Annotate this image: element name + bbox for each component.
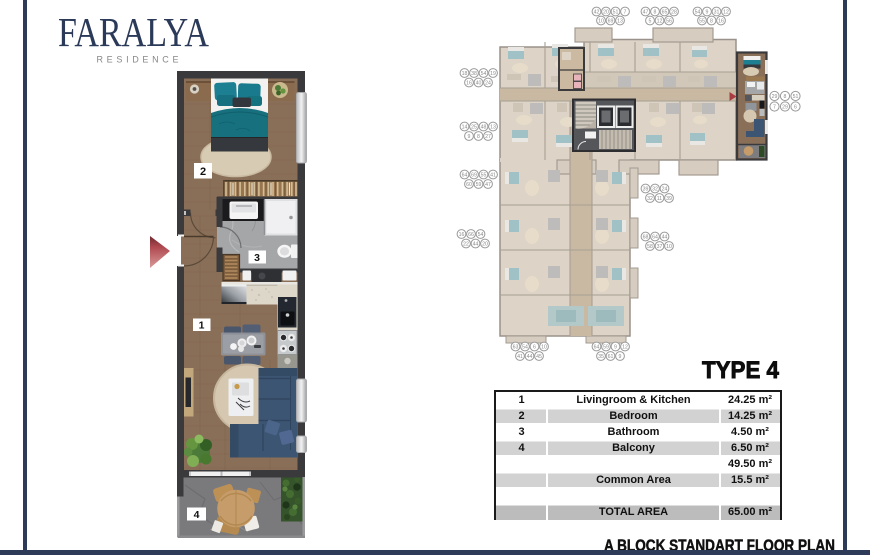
svg-text:11: 11	[657, 196, 662, 202]
svg-text:9: 9	[614, 344, 617, 350]
svg-text:22: 22	[463, 241, 469, 247]
svg-text:8: 8	[784, 94, 787, 100]
svg-text:54: 54	[478, 232, 484, 238]
svg-text:16: 16	[459, 232, 465, 238]
svg-text:44: 44	[662, 234, 668, 240]
svg-text:51: 51	[613, 9, 619, 15]
svg-text:38: 38	[471, 71, 477, 77]
svg-text:69: 69	[608, 18, 614, 24]
svg-text:66: 66	[468, 232, 474, 238]
svg-text:20: 20	[603, 9, 609, 15]
svg-text:9: 9	[619, 354, 622, 360]
svg-text:56: 56	[666, 18, 672, 24]
svg-text:41: 41	[490, 172, 496, 178]
svg-text:65: 65	[662, 9, 668, 15]
svg-text:12: 12	[723, 9, 729, 15]
svg-text:20: 20	[482, 241, 488, 247]
svg-text:12: 12	[657, 18, 663, 24]
svg-text:64: 64	[652, 234, 658, 240]
svg-text:61: 61	[608, 354, 614, 360]
svg-text:63: 63	[513, 344, 519, 350]
svg-text:14: 14	[462, 124, 468, 130]
svg-text:40: 40	[476, 80, 482, 86]
svg-text:5: 5	[649, 18, 652, 24]
svg-text:2: 2	[200, 166, 206, 178]
svg-text:25: 25	[471, 124, 477, 130]
svg-text:TYPE 4: TYPE 4	[702, 357, 779, 384]
svg-text:31: 31	[714, 9, 720, 15]
svg-text:55: 55	[481, 172, 487, 178]
svg-text:3: 3	[254, 252, 260, 264]
svg-text:37: 37	[657, 244, 663, 250]
svg-text:44: 44	[473, 241, 479, 247]
svg-text:44: 44	[527, 354, 533, 360]
svg-text:35: 35	[598, 354, 604, 360]
svg-text:8: 8	[710, 18, 713, 24]
svg-text:39: 39	[643, 186, 649, 192]
svg-text:10: 10	[666, 244, 672, 250]
svg-text:32: 32	[647, 196, 653, 202]
svg-text:55: 55	[699, 18, 705, 24]
svg-text:24: 24	[485, 80, 491, 86]
svg-text:42: 42	[594, 9, 600, 15]
svg-text:39: 39	[666, 196, 672, 202]
svg-text:59: 59	[476, 182, 482, 188]
svg-text:45: 45	[536, 354, 542, 360]
svg-text:69: 69	[471, 172, 477, 178]
svg-text:68: 68	[643, 234, 649, 240]
svg-text:10: 10	[598, 18, 604, 24]
svg-text:47: 47	[643, 9, 649, 15]
svg-text:54: 54	[522, 344, 528, 350]
svg-text:6: 6	[794, 104, 797, 110]
svg-text:10: 10	[541, 344, 547, 350]
svg-text:32: 32	[652, 186, 658, 192]
svg-text:13: 13	[617, 18, 623, 24]
svg-text:58: 58	[647, 244, 653, 250]
svg-text:59: 59	[603, 344, 609, 350]
svg-text:16: 16	[718, 18, 724, 24]
svg-text:64: 64	[462, 172, 468, 178]
svg-text:29: 29	[782, 104, 788, 110]
svg-text:41: 41	[517, 354, 523, 360]
svg-text:54: 54	[695, 9, 701, 15]
svg-text:54: 54	[481, 71, 487, 77]
svg-text:18: 18	[462, 71, 468, 77]
svg-text:29: 29	[772, 94, 778, 100]
svg-text:6: 6	[533, 344, 536, 350]
svg-text:RESIDENCE: RESIDENCE	[97, 55, 179, 65]
svg-text:64: 64	[594, 344, 600, 350]
svg-text:7: 7	[624, 9, 627, 15]
svg-text:1: 1	[199, 320, 205, 332]
svg-text:FARALYA: FARALYA	[58, 9, 209, 55]
svg-text:24: 24	[662, 186, 668, 192]
svg-text:8: 8	[654, 9, 657, 15]
svg-text:7: 7	[773, 104, 776, 110]
svg-text:60: 60	[466, 182, 472, 188]
svg-text:9: 9	[468, 134, 471, 140]
svg-text:28: 28	[671, 9, 677, 15]
svg-text:13: 13	[490, 124, 496, 130]
svg-text:51: 51	[793, 94, 799, 100]
svg-text:19: 19	[490, 71, 496, 77]
svg-text:12: 12	[622, 344, 628, 350]
svg-text:27: 27	[485, 134, 491, 140]
svg-text:47: 47	[485, 182, 491, 188]
svg-text:8: 8	[477, 134, 480, 140]
svg-text:48: 48	[481, 124, 487, 130]
svg-text:4: 4	[194, 509, 200, 521]
svg-text:16: 16	[466, 80, 472, 86]
svg-text:9: 9	[706, 9, 709, 15]
